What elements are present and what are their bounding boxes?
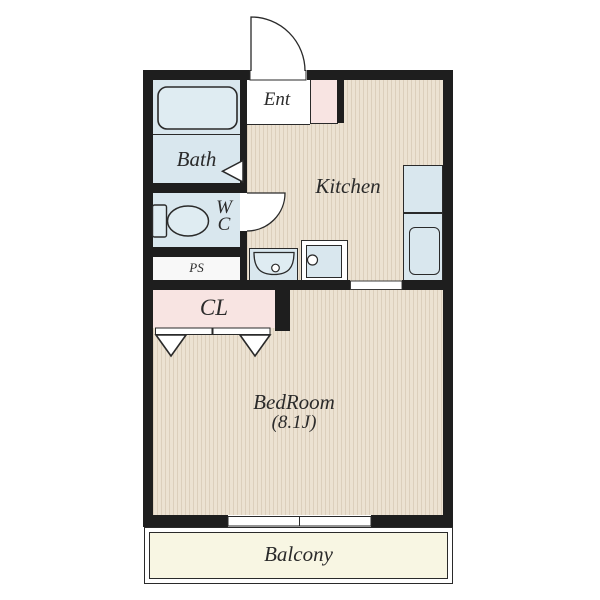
wall-bottom-left bbox=[143, 515, 228, 527]
floor-plan: Ent Bath W C PS CL Kitchen BedRoom (8.1J… bbox=[0, 0, 600, 600]
entrance-door-icon bbox=[251, 17, 305, 71]
bedroom-label-size: (8.1J) bbox=[272, 412, 317, 433]
wc-label: W C bbox=[209, 199, 239, 233]
wall-top-left bbox=[143, 70, 250, 80]
wall-closet-top bbox=[143, 280, 350, 290]
washing-machine-pan-inner bbox=[306, 245, 342, 278]
counter-divider-line bbox=[404, 212, 442, 214]
wall-bedroom-top-right bbox=[402, 280, 453, 290]
bedroom-label: BedRoom (8.1J) bbox=[194, 393, 394, 432]
balcony-label: Balcony bbox=[144, 544, 453, 565]
washbasin-vanity bbox=[249, 248, 298, 283]
wall-entrance-stub bbox=[337, 70, 344, 123]
washing-machine-pan bbox=[301, 240, 348, 283]
ps-label: PS bbox=[153, 261, 240, 275]
balcony-window bbox=[228, 517, 371, 527]
wall-bath-right-upper bbox=[240, 70, 247, 193]
wall-bottom-right bbox=[371, 515, 453, 527]
closet-label: CL bbox=[153, 296, 275, 319]
entrance-label: Ent bbox=[244, 90, 310, 109]
kitchen-sink-counter bbox=[403, 165, 443, 282]
entrance-hall-step bbox=[310, 80, 338, 124]
bath-label: Bath bbox=[153, 149, 240, 170]
wc-label-line2: C bbox=[218, 214, 231, 235]
bedroom-label-name: BedRoom bbox=[253, 390, 335, 414]
wall-closet-right bbox=[275, 280, 290, 331]
kitchen-label: Kitchen bbox=[288, 176, 408, 197]
wall-bath-bottom bbox=[143, 183, 247, 193]
wall-right bbox=[443, 70, 453, 527]
wall-left bbox=[143, 70, 153, 527]
entrance-door-sill bbox=[250, 71, 306, 81]
wall-top-right bbox=[307, 70, 453, 80]
kitchen-sink-basin bbox=[409, 227, 440, 275]
wall-wc-bottom bbox=[143, 247, 247, 257]
